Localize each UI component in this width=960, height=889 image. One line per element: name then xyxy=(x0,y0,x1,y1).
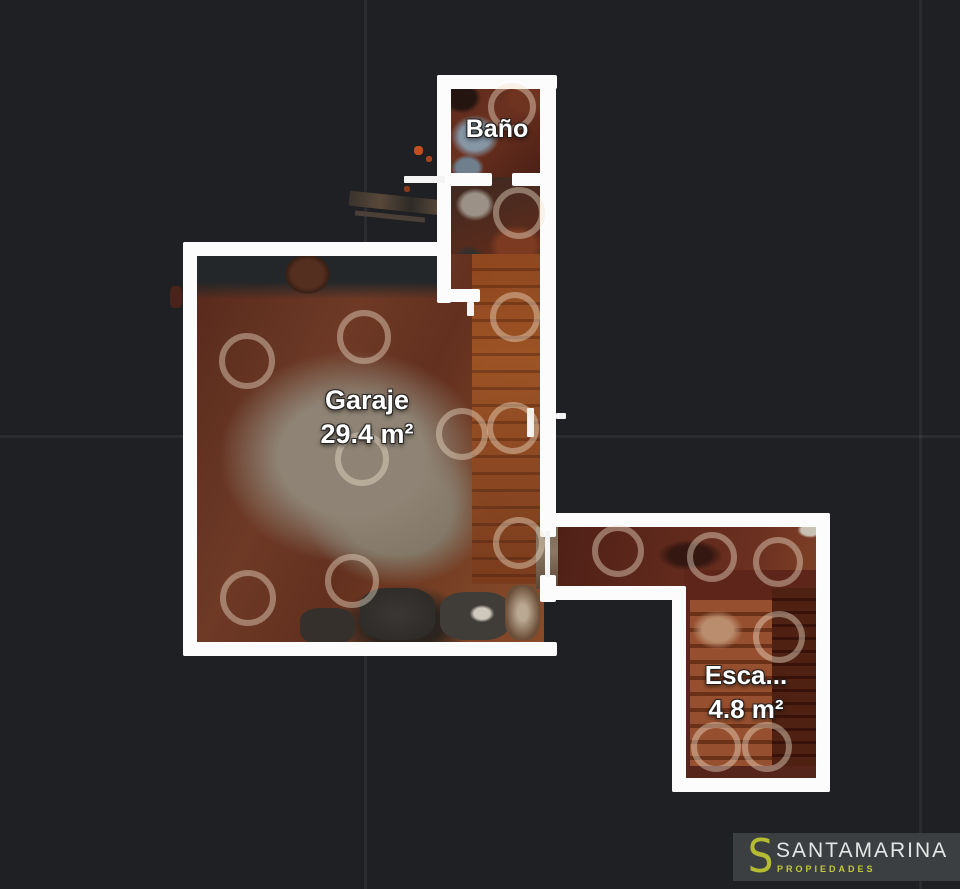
door-leaf xyxy=(545,531,550,577)
scan-ring-icon xyxy=(753,537,803,587)
scan-spill-dot xyxy=(414,146,423,155)
scan-ring-icon xyxy=(753,611,805,663)
scan-ring-icon xyxy=(487,402,539,454)
brand-watermark: S SANTAMARINA PROPIEDADES xyxy=(733,833,960,881)
wall-segment xyxy=(672,778,830,792)
wall-segment xyxy=(437,289,480,302)
scan-ring-icon xyxy=(219,333,275,389)
wall-segment xyxy=(445,173,492,186)
room-name: Baño xyxy=(437,115,557,144)
scan-ring-icon xyxy=(493,187,545,239)
wall-segment xyxy=(540,75,556,537)
room-label-escalera: Esca... 4.8 m² xyxy=(666,658,826,726)
scan-ring-icon xyxy=(337,310,391,364)
wall-segment xyxy=(437,75,451,303)
scan-ring-icon xyxy=(687,532,737,582)
room-name: Esca... xyxy=(666,658,826,692)
room-label-garaje: Garaje 29.4 m² xyxy=(287,383,447,451)
wall-segment xyxy=(183,642,557,656)
wall-segment xyxy=(540,586,686,600)
door-leaf xyxy=(556,413,566,419)
wall-segment xyxy=(183,242,197,656)
garage-missing-scan-patch xyxy=(195,254,445,299)
scan-ring-icon xyxy=(691,722,741,772)
wall-segment xyxy=(816,513,830,792)
room-area: 4.8 m² xyxy=(666,692,826,726)
room-name: Garaje xyxy=(287,383,447,417)
room-label-bano: Baño xyxy=(437,115,557,144)
grid-line-vertical xyxy=(919,0,922,889)
brand-logo-s-icon: S xyxy=(748,832,774,880)
floorplan-canvas[interactable]: Baño Garaje 29.4 m² Esca... 4.8 m² S SAN… xyxy=(0,0,960,889)
scan-spill-dot xyxy=(426,156,432,162)
wall-segment xyxy=(540,513,830,527)
garage-clutter xyxy=(505,585,540,640)
scan-ring-icon xyxy=(592,525,644,577)
scan-spill-dot xyxy=(170,286,182,308)
scan-ring-icon xyxy=(220,570,276,626)
door-leaf xyxy=(404,176,445,183)
garage-clutter xyxy=(300,608,355,644)
scan-ring-icon xyxy=(493,517,545,569)
wall-segment xyxy=(183,242,444,256)
brand-name: SANTAMARINA xyxy=(776,839,948,863)
wall-segment xyxy=(512,173,542,186)
scan-spill-dot xyxy=(404,186,410,192)
door-leaf xyxy=(467,302,474,316)
scan-ring-icon xyxy=(490,292,540,342)
scan-ring-icon xyxy=(742,722,792,772)
room-area: 29.4 m² xyxy=(287,417,447,451)
garage-clutter xyxy=(440,592,510,640)
scan-ring-icon xyxy=(325,554,379,608)
brand-tagline: PROPIEDADES xyxy=(777,864,876,874)
